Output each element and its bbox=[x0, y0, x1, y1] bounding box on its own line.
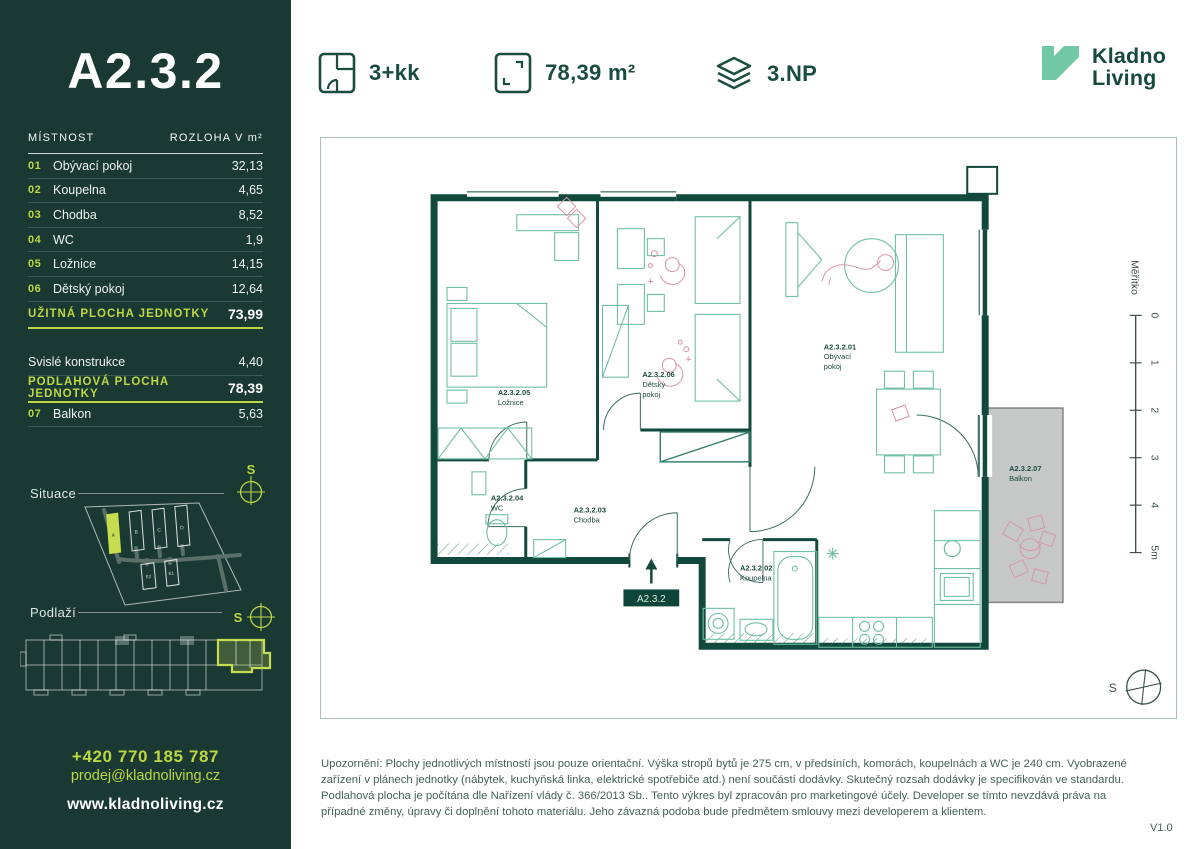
svg-text:D: D bbox=[180, 525, 184, 531]
svg-text:E2: E2 bbox=[146, 574, 152, 579]
unit-title: A2.3.2 bbox=[0, 42, 291, 100]
floor-area-row: PODLAHOVÁ PLOCHA JEDNOTKY 78,39 bbox=[28, 376, 263, 403]
usable-area-label: UŽITNÁ PLOCHA JEDNOTKY bbox=[28, 308, 209, 320]
area-icon bbox=[494, 52, 532, 94]
row-num: 04 bbox=[28, 234, 53, 246]
podlazi-rule bbox=[78, 612, 222, 613]
stove-burner bbox=[860, 621, 870, 631]
outer-walls bbox=[434, 198, 985, 646]
spec-area: 78,39 m² bbox=[494, 52, 635, 94]
wc-sink bbox=[472, 472, 486, 495]
col-area: ROZLOHA V m² bbox=[170, 132, 263, 144]
row-num: 03 bbox=[28, 209, 53, 221]
svg-text:B: B bbox=[134, 530, 138, 536]
room-table: MÍSTNOST ROZLOHA V m² 01 Obývací pokoj 3… bbox=[28, 132, 263, 427]
floor-area-value: 78,39 bbox=[228, 380, 263, 396]
svg-text:pokoj: pokoj bbox=[642, 390, 660, 399]
email-link[interactable]: prodej@kladnoliving.cz bbox=[0, 768, 291, 784]
balcony-row: 07 Balkon 5,63 bbox=[28, 403, 263, 428]
disposition-value: 3+kk bbox=[369, 60, 420, 86]
svg-text:pokoj: pokoj bbox=[824, 362, 842, 371]
floorplan-sheet: A2.3.2 MÍSTNOST ROZLOHA V m² 01 Obývací … bbox=[0, 0, 1200, 849]
website-link[interactable]: www.kladnoliving.cz bbox=[0, 796, 291, 814]
row-area: 32,13 bbox=[232, 159, 263, 173]
vertical-constructions-label: Svislé konstrukce bbox=[28, 355, 125, 369]
layers-icon bbox=[714, 56, 754, 92]
svg-text:A2.3.2.02: A2.3.2.02 bbox=[740, 564, 772, 573]
kids-bed bbox=[695, 217, 740, 304]
spec-disposition: 3+kk bbox=[318, 52, 420, 94]
phone-link[interactable]: +420 770 185 787 bbox=[0, 747, 291, 767]
kladno-living-logo-icon bbox=[1042, 46, 1080, 82]
version-label: V1.0 bbox=[1150, 822, 1173, 834]
dining-table bbox=[877, 389, 941, 455]
row-name: Dětský pokoj bbox=[53, 282, 125, 296]
row-num: 06 bbox=[28, 283, 53, 295]
svg-text:S: S bbox=[1109, 681, 1117, 695]
svg-text:A2.3.2: A2.3.2 bbox=[637, 594, 666, 605]
svg-text:S: S bbox=[234, 610, 243, 625]
svg-text:4: 4 bbox=[1149, 502, 1160, 508]
svg-text:5m: 5m bbox=[1149, 545, 1160, 560]
disclaimer-text: Upozornění: Plochy jednotlivých místnost… bbox=[321, 756, 1139, 820]
svg-text:Koupelna: Koupelna bbox=[740, 573, 772, 582]
room-table-header: MÍSTNOST ROZLOHA V m² bbox=[28, 132, 263, 154]
situace-rule bbox=[78, 493, 224, 494]
floorplan-icon bbox=[318, 52, 356, 94]
svg-text:C: C bbox=[157, 527, 161, 533]
row-area: 5,63 bbox=[239, 407, 263, 421]
svg-text:A2.3.2.05: A2.3.2.05 bbox=[498, 388, 530, 397]
row-name: WC bbox=[53, 233, 74, 247]
stairwell-block bbox=[115, 636, 129, 645]
svg-text:Balkon: Balkon bbox=[1009, 474, 1032, 483]
svg-text:Ložnice: Ložnice bbox=[498, 398, 524, 407]
row-area: 1,9 bbox=[246, 233, 263, 247]
spec-floor: 3.NP bbox=[714, 56, 817, 92]
row-name: Obývací pokoj bbox=[53, 159, 132, 173]
bathtub bbox=[774, 552, 817, 645]
brand-line2: Living bbox=[1092, 68, 1166, 90]
table-row: 06 Dětský pokoj 12,64 bbox=[28, 277, 263, 302]
floor-thumbnail bbox=[20, 628, 276, 706]
kids-desk bbox=[617, 229, 644, 269]
row-num: 05 bbox=[28, 258, 53, 270]
sidebar: A2.3.2 MÍSTNOST ROZLOHA V m² 01 Obývací … bbox=[0, 0, 291, 849]
brand-name: Kladno Living bbox=[1092, 46, 1166, 90]
floor-area-label: PODLAHOVÁ PLOCHA JEDNOTKY bbox=[28, 376, 228, 400]
scale-bar: Měřítko 0 1 2 3 4 5m bbox=[1129, 260, 1160, 560]
usable-area-row: UŽITNÁ PLOCHA JEDNOTKY 73,99 bbox=[28, 302, 263, 329]
svg-text:A2.3.2.01: A2.3.2.01 bbox=[824, 342, 856, 351]
row-area: 8,52 bbox=[239, 208, 263, 222]
floorplan-drawing: A2.3.2.05 Ložnice A2.3.2.06 Dětský pokoj… bbox=[321, 138, 1176, 718]
svg-text:0: 0 bbox=[1149, 312, 1160, 318]
hall-closet bbox=[660, 432, 750, 462]
site-map: A B C D E2 E1 bbox=[20, 498, 280, 610]
svg-text:Obývací: Obývací bbox=[824, 352, 852, 361]
pillar bbox=[967, 167, 997, 194]
brand-logo: Kladno Living bbox=[1042, 46, 1166, 90]
svg-text:E1: E1 bbox=[168, 571, 174, 576]
table-row: 02 Koupelna 4,65 bbox=[28, 179, 263, 204]
row-area: 4,65 bbox=[239, 183, 263, 197]
table-row: 01 Obývací pokoj 32,13 bbox=[28, 154, 263, 179]
svg-text:A2.3.2.06: A2.3.2.06 bbox=[642, 370, 674, 379]
row-num: 01 bbox=[28, 160, 53, 172]
row-num: 02 bbox=[28, 184, 53, 196]
vertical-constructions-row: Svislé konstrukce 4,40 bbox=[28, 350, 263, 376]
wardrobe bbox=[438, 428, 532, 459]
sofa bbox=[895, 235, 943, 353]
room-labels: A2.3.2.05 Ložnice A2.3.2.06 Dětský pokoj… bbox=[491, 342, 1042, 582]
svg-text:Dětský: Dětský bbox=[642, 380, 665, 389]
plan-compass-icon: S bbox=[1109, 669, 1162, 705]
svg-text:2: 2 bbox=[1149, 407, 1160, 413]
table-row: 04 WC 1,9 bbox=[28, 228, 263, 253]
col-room: MÍSTNOST bbox=[28, 132, 94, 144]
table-row: 03 Chodba 8,52 bbox=[28, 203, 263, 228]
vertical-constructions-value: 4,40 bbox=[239, 355, 263, 369]
dishwasher-symbol bbox=[827, 548, 839, 560]
plan-frame: A2.3.2.05 Ložnice A2.3.2.06 Dětský pokoj… bbox=[320, 137, 1177, 719]
svg-text:Měřítko: Měřítko bbox=[1129, 260, 1140, 295]
stairwell-block bbox=[180, 636, 194, 645]
area-value: 78,39 m² bbox=[545, 60, 635, 86]
site-roads bbox=[104, 510, 240, 590]
svg-text:WC: WC bbox=[491, 504, 504, 513]
svg-text:3: 3 bbox=[1149, 455, 1160, 461]
svg-text:S: S bbox=[247, 462, 256, 477]
podlazi-label: Podlaží bbox=[30, 605, 76, 620]
table-row: 05 Ložnice 14,15 bbox=[28, 252, 263, 277]
floor-value: 3.NP bbox=[767, 61, 817, 87]
svg-text:Chodba: Chodba bbox=[574, 516, 601, 525]
svg-text:A2.3.2.07: A2.3.2.07 bbox=[1009, 464, 1041, 473]
svg-text:A2.3.2.03: A2.3.2.03 bbox=[574, 506, 606, 515]
svg-text:A2.3.2.04: A2.3.2.04 bbox=[491, 494, 524, 503]
svg-text:1: 1 bbox=[1149, 360, 1160, 366]
row-name: Chodba bbox=[53, 208, 97, 222]
windows bbox=[467, 190, 992, 477]
row-num: 07 bbox=[28, 408, 53, 420]
row-name: Ložnice bbox=[53, 257, 96, 271]
tv-unit bbox=[786, 223, 798, 297]
row-name: Koupelna bbox=[53, 183, 106, 197]
row-name: Balkon bbox=[53, 407, 91, 421]
row-area: 12,64 bbox=[232, 282, 263, 296]
usable-area-value: 73,99 bbox=[228, 306, 263, 322]
brand-line1: Kladno bbox=[1092, 46, 1166, 68]
highlighted-unit bbox=[218, 640, 270, 672]
row-area: 14,15 bbox=[232, 257, 263, 271]
door-arcs bbox=[488, 393, 978, 582]
